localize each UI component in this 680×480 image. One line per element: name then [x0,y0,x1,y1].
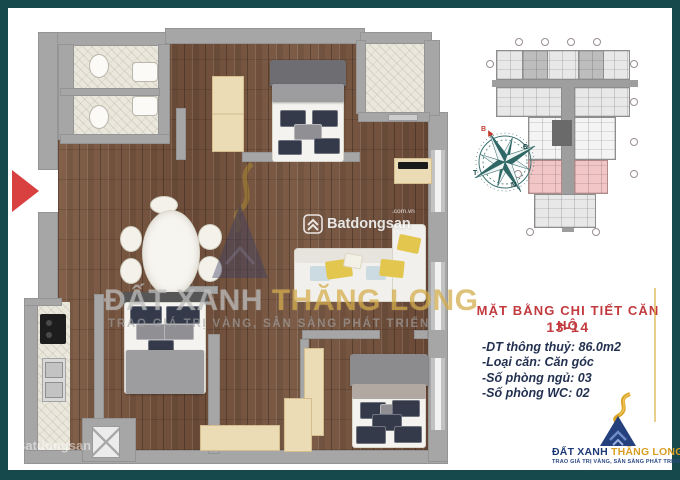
cabinet [284,398,312,452]
compass: B Đ T N [465,120,545,200]
toilet [89,105,109,129]
site-plan-units-top [496,50,630,80]
balcony-tile-floor [362,44,426,114]
balcony-door [388,114,418,121]
unit-number-badge [486,60,494,68]
unit-number-badge [593,38,601,46]
bathroom-sink [132,96,158,116]
batdongsan-watermark-corner: Batdongsan [16,438,112,453]
unit-number-badge [630,170,638,178]
wall [176,108,186,160]
tv [398,162,428,169]
brand-watermark: ĐẤT XANH THĂNG LONG [104,284,479,318]
pillow [379,259,405,278]
logo-tagline: TRAO GIÁ TRỊ VÀNG, SẴN SÀNG PHÁT TRIỂN [552,459,668,465]
wall [414,330,428,339]
unit-number-badge [630,138,638,146]
batdongsan-watermark-icon [303,214,323,234]
site-plan-units-left [496,87,562,117]
unit-number-badge [630,98,638,106]
dining-chair [120,258,142,284]
detail-bedrooms: -Số phòng ngủ: 03 [482,371,621,386]
logo-pyramid-icon [598,414,638,448]
wall [38,212,58,304]
unit-number-badge [541,38,549,46]
unit-number: 13-14 [470,319,666,335]
toilet [89,54,109,78]
highlighted-unit-14 [574,160,608,194]
pillow [394,426,422,443]
dining-chair [120,226,142,252]
detail-type: -Loại căn: Căn góc [482,355,621,370]
logo-watermark [208,160,272,284]
site-plan-unit [574,117,616,160]
window [431,358,445,430]
pillow [343,253,363,270]
wall [356,40,366,114]
pillow [356,426,386,444]
bed-blanket [272,84,344,102]
compass-west-label: T [473,170,477,177]
detail-area: -DT thông thuỷ: 86.0m2 [482,340,621,355]
logo-brand-name: ĐẤT XANH THĂNG LONG [552,446,668,458]
unit-number-badge [567,38,575,46]
burner [46,320,52,326]
compass-east-label: Đ [523,144,528,151]
wall [360,32,432,44]
site-plan-units-right [574,87,630,117]
floorplan-brochure: Batdongsan .com.vn ĐẤT XANH THĂNG LONG T… [0,0,680,480]
developer-logo: ĐẤT XANH THĂNG LONG TRAO GIÁ TRỊ VÀNG, S… [552,390,668,468]
bed-blanket [126,350,204,394]
pillow [314,138,340,154]
site-plan-unit [522,50,548,80]
wall [60,88,160,96]
batdongsan-watermark-text: Batdongsan [327,216,411,232]
wall [302,330,380,339]
wall [165,28,365,44]
window [431,150,445,212]
sink-basin [45,382,63,398]
entrance-arrow [12,170,39,212]
wall [38,32,58,170]
wardrobe [212,76,244,152]
wall [60,134,170,144]
unit-number-badge [630,60,638,68]
brand-watermark-tagline: TRAO GIÁ TRỊ VÀNG, SẴN SÀNG PHÁT TRIỂN [108,318,430,330]
bed-blanket [352,384,426,399]
wall [24,298,62,306]
compass-north-label: B [481,126,486,133]
bathroom-sink [132,62,158,82]
unit-number-badge [526,228,534,236]
site-plan-unit [578,50,604,80]
sink-basin [45,362,63,378]
batdongsan-watermark-suffix: .com.vn [392,208,415,215]
compass-south-label: N [511,182,516,189]
bed-headboard [270,60,346,86]
elevator-core [552,120,572,146]
burner [46,332,52,338]
cooktop [40,314,66,344]
wall [424,40,440,116]
pillow [278,140,302,155]
unit-number-badge [592,228,600,236]
unit-number-badge [515,38,523,46]
bed-headboard [350,354,428,386]
cabinet [200,425,280,451]
